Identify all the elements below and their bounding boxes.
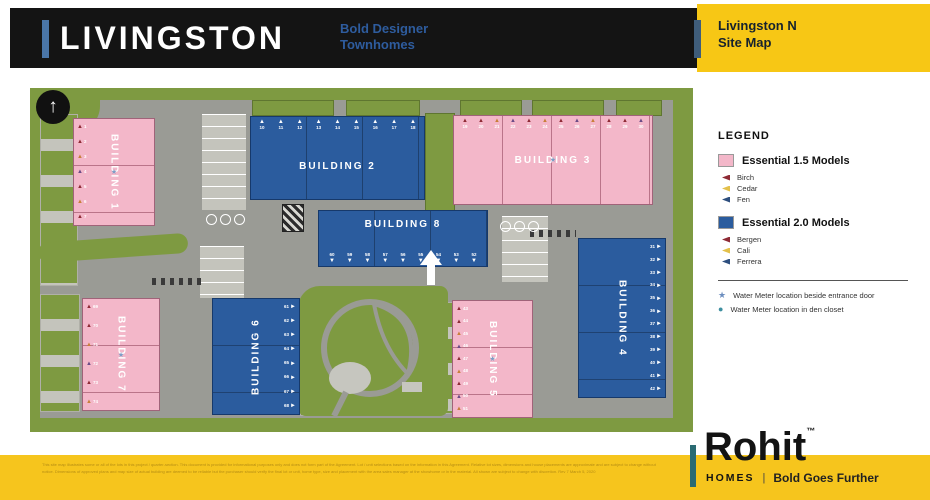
unit-marker: ▲21	[494, 118, 500, 130]
tree-cluster	[206, 214, 245, 225]
unit-marker: ▼52	[471, 253, 477, 265]
building-5-units: ▲43▲44▲45▲46▲47▲48▲49▲50▲51	[456, 306, 468, 412]
unit-marker: ▲45	[456, 331, 468, 337]
unit-marker: ▲49	[456, 381, 468, 387]
unit-marker: ▲12	[297, 119, 303, 131]
legend-item-label: Fen	[737, 195, 750, 204]
tagline: Bold Designer Townhomes	[340, 21, 428, 54]
legend-item-label: Birch	[737, 173, 754, 182]
legend-item-birch: Birch	[722, 173, 914, 182]
rohit-subline: HOMES | Bold Goes Further	[706, 471, 879, 485]
building-1[interactable]: BUILDING 1 ★ ▲1▲2▲3▲4▲5▲6▲7	[73, 118, 155, 226]
legend-group-essential-20: Essential 2.0 Models Bergen Cali Ferrera	[718, 216, 914, 266]
unit-marker: ►38	[650, 334, 662, 340]
legend-item-label: Ferrera	[737, 257, 762, 266]
unit-marker: ►67	[284, 389, 296, 395]
unit-marker: ▲72	[86, 361, 98, 367]
water-meter-star-icon: ★	[489, 355, 495, 363]
north-arrow-icon: ↑	[36, 90, 70, 124]
unit-marker: ►37	[650, 321, 662, 327]
unit-marker: ▲73	[86, 380, 98, 386]
flag-icon	[722, 186, 730, 192]
greenery-pad	[616, 100, 662, 116]
unit-marker: ►68	[284, 403, 296, 409]
unit-marker: ▲22	[510, 118, 516, 130]
unit-marker: ▲15	[353, 119, 359, 131]
central-park	[298, 286, 448, 416]
flag-icon	[722, 248, 730, 254]
legend-item-label: Cali	[737, 246, 750, 255]
rohit-brand: Rohit™	[704, 427, 815, 467]
tree-icon	[528, 221, 539, 232]
unit-marker: ▼60	[329, 253, 335, 265]
building-8-units: ▼60▼59▼58▼57▼56▼55▼54▼53▼52	[329, 253, 477, 265]
water-meter-star-icon: ★	[550, 156, 556, 164]
greenery-pad	[346, 100, 420, 116]
building-7-units: ▲69▲70▲71▲72▲73▲74	[86, 304, 98, 405]
legend-note-star: ★ Water Meter location beside entrance d…	[718, 291, 914, 300]
tree-icon	[220, 214, 231, 225]
building-4[interactable]: BUILDING 4 ►31►32►33►34►35►36►37►38►39►4…	[578, 238, 666, 398]
unit-marker: ►33	[650, 270, 662, 276]
unit-marker: ▼57	[382, 253, 388, 265]
greenery-strip-top	[30, 88, 693, 100]
flag-icon	[722, 237, 730, 243]
unit-marker: ▲11	[278, 119, 284, 131]
tree-icon	[500, 221, 511, 232]
unit-marker: ▲27	[590, 118, 596, 130]
tree-icon	[234, 214, 245, 225]
legend-note-text: Water Meter location in den closet	[730, 305, 843, 314]
unit-marker: ▲4	[77, 169, 86, 175]
unit-marker: ▲26	[574, 118, 580, 130]
north-arrow-glyph: ↑	[48, 96, 58, 118]
building-6[interactable]: BUILDING 6 ►61►62►63►64►65►66►67►68	[212, 298, 300, 415]
unit-marker: ▲20	[478, 118, 484, 130]
tagline-line2: Townhomes	[340, 37, 428, 53]
unit-marker: ▲5	[77, 184, 86, 190]
legend-group-title: Essential 1.5 Models	[742, 155, 850, 167]
unit-marker: ▲16	[372, 119, 378, 131]
unit-marker: ►63	[284, 332, 296, 338]
unit-marker: ►35	[650, 296, 662, 302]
unit-marker: ►32	[650, 257, 662, 263]
swatch-essential-20	[718, 216, 734, 229]
unit-marker: ▲13	[316, 119, 322, 131]
legend-note-dot: ● Water Meter location in den closet	[718, 305, 914, 314]
crosswalk-hatch	[282, 204, 304, 232]
tree-cluster	[500, 221, 539, 232]
entrance-arrow-head	[420, 250, 442, 265]
building-5[interactable]: BUILDING 5 ★ ▲43▲44▲45▲46▲47▲48▲49▲50▲51	[452, 300, 533, 418]
badge-text: Livingston N Site Map	[718, 18, 797, 52]
header-bar: LIVINGSTON Bold Designer Townhomes	[10, 8, 700, 68]
flag-icon	[722, 197, 730, 203]
unit-marker: ▲74	[86, 399, 98, 405]
legend-divider	[718, 280, 908, 281]
unit-marker: ►65	[284, 361, 296, 367]
disclaimer-text: This site map illustrates some or all of…	[42, 462, 660, 476]
unit-marker: ▲47	[456, 356, 468, 362]
unit-marker: ▲7	[77, 214, 86, 220]
site-map[interactable]: ↑ BUILDING 1 ★ ▲1▲2▲3▲4▲5▲6▲7 BUILDING 2…	[30, 88, 693, 432]
building-6-units: ►61►62►63►64►65►66►67►68	[284, 304, 296, 409]
trademark-symbol: ™	[806, 426, 815, 436]
unit-marker: ▼59	[347, 253, 353, 265]
building-1-units: ▲1▲2▲3▲4▲5▲6▲7	[77, 124, 86, 220]
unit-marker: ►34	[650, 283, 662, 289]
entrance-arrow-icon	[420, 250, 442, 286]
building-2[interactable]: BUILDING 2 ▲10▲11▲12▲13▲14▲15▲16▲17▲18	[250, 116, 425, 200]
water-meter-dot-icon: ●	[718, 305, 723, 314]
unit-marker: ▲69	[86, 304, 98, 310]
legend-heading: LEGEND	[718, 130, 914, 142]
building-8[interactable]: BUILDING 8 ▼60▼59▼58▼57▼56▼55▼54▼53▼52	[318, 210, 488, 267]
tree-icon	[206, 214, 217, 225]
badge-line1: Livingston N	[718, 18, 797, 35]
water-meter-star-icon: ★	[718, 291, 726, 300]
unit-marker: ►36	[650, 309, 662, 315]
greenery-pad	[252, 100, 334, 116]
unit-marker: ▲1	[77, 124, 86, 130]
legend-item-cali: Cali	[722, 246, 914, 255]
unit-marker: ▲46	[456, 344, 468, 350]
unit-marker: ▲2	[77, 139, 86, 145]
unit-marker: ▲50	[456, 394, 468, 400]
unit-marker: ▲3	[77, 154, 86, 160]
flag-icon	[722, 175, 730, 181]
unit-marker: ▲10	[259, 119, 265, 131]
unit-marker: ▲24	[542, 118, 548, 130]
unit-marker: ▼53	[453, 253, 459, 265]
rohit-brand-text: Rohit	[704, 425, 806, 469]
unit-marker: ▲23	[526, 118, 532, 130]
title-accent-bar	[42, 20, 49, 58]
greenery-pad	[460, 100, 522, 116]
legend: LEGEND Essential 1.5 Models Birch Cedar …	[718, 130, 914, 319]
park-paths	[298, 286, 448, 416]
badge-accent-bar	[694, 20, 701, 58]
page-title: LIVINGSTON	[60, 20, 285, 57]
unit-marker: ▲30	[638, 118, 644, 130]
unit-marker: ▲14	[335, 119, 341, 131]
building-3-units: ▲19▲20▲21▲22▲23▲24▲25▲26▲27▲28▲29▲30	[462, 118, 644, 130]
legend-group-essential-15: Essential 1.5 Models Birch Cedar Fen	[718, 154, 914, 204]
legend-group-title: Essential 2.0 Models	[742, 217, 850, 229]
unit-marker: ▼58	[365, 253, 371, 265]
legend-item-fen: Fen	[722, 195, 914, 204]
front-yards	[40, 294, 80, 412]
greenery-strip-left	[30, 88, 40, 432]
building-7[interactable]: BUILDING 7 ★ ▲69▲70▲71▲72▲73▲74	[82, 298, 160, 411]
greenery-pad	[532, 100, 604, 116]
unit-marker: ▲28	[606, 118, 612, 130]
greenery-island	[425, 113, 455, 215]
flag-icon	[722, 259, 730, 265]
building-3[interactable]: BUILDING 3 ★ ▲19▲20▲21▲22▲23▲24▲25▲26▲27…	[453, 115, 653, 205]
rohit-homes-text: HOMES	[706, 472, 755, 484]
unit-marker: ▲17	[391, 119, 397, 131]
unit-marker: ►42	[650, 386, 662, 392]
entrance-arrow-stem	[427, 265, 435, 285]
unit-marker: ▲44	[456, 319, 468, 325]
unit-marker: ►66	[284, 375, 296, 381]
unit-marker: ►31	[650, 244, 662, 250]
unit-marker: ▲71	[86, 342, 98, 348]
building-2-units: ▲10▲11▲12▲13▲14▲15▲16▲17▲18	[259, 119, 416, 131]
legend-item-bergen: Bergen	[722, 235, 914, 244]
unit-marker: ▲29	[622, 118, 628, 130]
legend-item-ferrera: Ferrera	[722, 257, 914, 266]
greenery-strip-right	[673, 88, 693, 432]
parking-stalls	[202, 114, 246, 210]
building-4-units: ►31►32►33►34►35►36►37►38►39►40►41►42	[650, 244, 662, 392]
unit-marker: ▲19	[462, 118, 468, 130]
unit-marker: ►61	[284, 304, 296, 310]
visitor-stall-ticks	[152, 278, 204, 285]
legend-item-label: Cedar	[737, 184, 757, 193]
unit-marker: ▲51	[456, 406, 468, 412]
unit-marker: ►40	[650, 360, 662, 366]
legend-item-cedar: Cedar	[722, 184, 914, 193]
swatch-essential-15	[718, 154, 734, 167]
water-meter-star-icon: ★	[111, 168, 117, 176]
parking-stalls	[200, 246, 244, 298]
pipe-divider: |	[763, 472, 766, 484]
tagline-line1: Bold Designer	[340, 21, 428, 37]
unit-marker: ▼56	[400, 253, 406, 265]
site-map-page: LIVINGSTON Bold Designer Townhomes Livin…	[0, 0, 930, 500]
unit-marker: ►39	[650, 347, 662, 353]
legend-note-text: Water Meter location beside entrance doo…	[733, 291, 874, 300]
unit-marker: ▲70	[86, 323, 98, 329]
rohit-tagline-text: Bold Goes Further	[773, 471, 878, 485]
tree-icon	[514, 221, 525, 232]
unit-marker: ▲18	[410, 119, 416, 131]
water-meter-star-icon: ★	[118, 351, 124, 359]
unit-marker: ►64	[284, 346, 296, 352]
rohit-accent-bar	[690, 445, 696, 487]
unit-marker: ►41	[650, 373, 662, 379]
unit-marker: ▲6	[77, 199, 86, 205]
unit-marker: ▲48	[456, 369, 468, 375]
badge-line2: Site Map	[718, 35, 797, 52]
unit-marker: ▲43	[456, 306, 468, 312]
unit-marker: ►62	[284, 318, 296, 324]
legend-item-label: Bergen	[737, 235, 761, 244]
greenery-strip-bottom	[30, 418, 693, 432]
unit-marker: ▲25	[558, 118, 564, 130]
